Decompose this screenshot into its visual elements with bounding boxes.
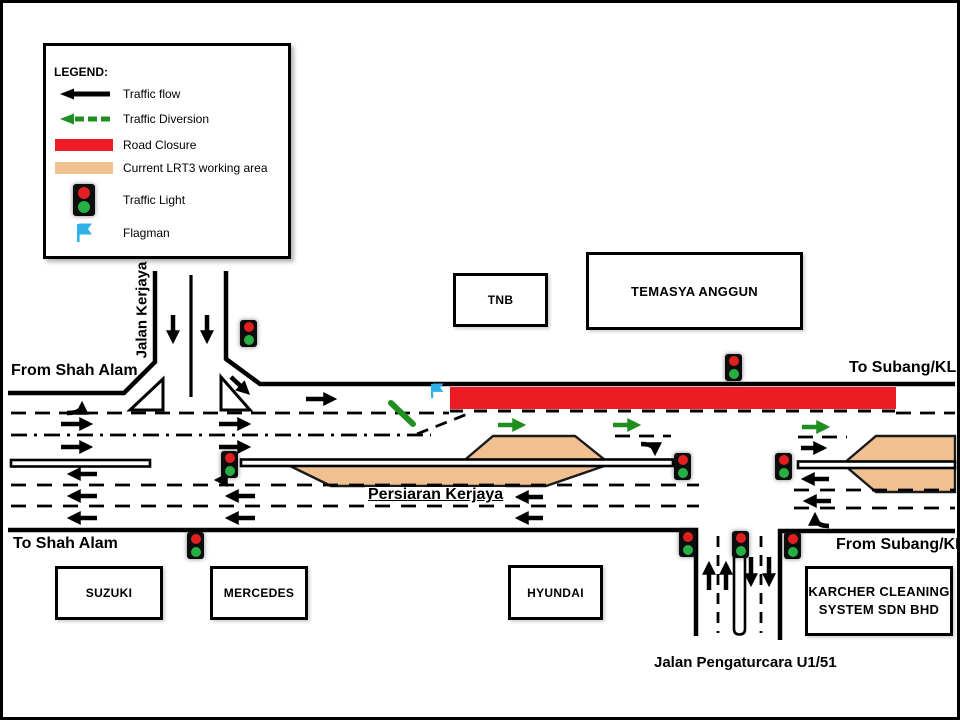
building-label: TEMASYA ANGGUN: [631, 284, 758, 299]
legend-label: Traffic Diversion: [123, 112, 209, 126]
traffic-light: [221, 451, 238, 478]
red-light: [788, 534, 798, 544]
building-temasya-anggun: TEMASYA ANGGUN: [586, 252, 803, 330]
flow-arrow-turn: [815, 516, 829, 526]
median-west: [11, 460, 150, 467]
legend-label: Road Closure: [123, 138, 196, 152]
green-light: [191, 547, 201, 557]
diversion-arrows: [498, 425, 826, 427]
traffic-light: [674, 453, 691, 480]
building-tnb: TNB: [453, 273, 548, 327]
legend-box: LEGEND: Traffic flow Traffic Diversion R…: [43, 43, 291, 259]
red-light: [736, 533, 746, 543]
red-light: [678, 455, 688, 465]
road-label-jalan-pengaturcara: Jalan Pengaturcara U1/51: [654, 655, 837, 670]
lane-merge-dash: [417, 413, 470, 434]
red-light: [191, 534, 201, 544]
green-light: [244, 335, 254, 345]
building-karcher: KARCHER CLEANING SYSTEM SDN BHD: [805, 566, 953, 636]
median-center: [241, 460, 673, 467]
building-label: SUZUKI: [86, 586, 132, 600]
road-label-to-shah-alam: To Shah Alam: [13, 536, 118, 552]
building-mercedes: MERCEDES: [210, 566, 308, 620]
working-area-bar-icon: [53, 156, 115, 180]
green-light: [779, 468, 789, 478]
red-light: [683, 532, 693, 542]
legend-label: Traffic flow: [123, 87, 180, 101]
building-suzuki: SUZUKI: [55, 566, 163, 620]
red-light: [244, 322, 254, 332]
legend-label: Traffic Light: [123, 193, 185, 207]
legend-row-working-area: Current LRT3 working area: [46, 156, 288, 180]
red-light: [779, 455, 789, 465]
legend-row-traffic-flow: Traffic flow: [46, 82, 288, 106]
building-label: HYUNDAI: [527, 586, 584, 600]
road-label-jalan-kerjaya: Jalan Kerjaya: [135, 262, 150, 359]
green-light: [678, 468, 688, 478]
traffic-flow-arrow-icon: [53, 82, 115, 106]
legend-row-traffic-diversion: Traffic Diversion: [46, 107, 288, 131]
green-light: [729, 369, 739, 379]
building-label: KARCHER CLEANING: [808, 583, 949, 601]
traffic-light: [784, 532, 801, 559]
traffic-flow-arrows: [61, 315, 831, 590]
traffic-light: [732, 531, 749, 558]
traffic-light: [187, 532, 204, 559]
building-hyundai: HYUNDAI: [508, 565, 603, 620]
flagman-icon: [431, 384, 444, 399]
building-label: MERCEDES: [224, 586, 294, 600]
legend-row-flagman: Flagman: [46, 218, 288, 248]
traffic-light: [240, 320, 257, 347]
traffic-diversion-diagram: From Shah Alam To Subang/KL To Shah Alam…: [0, 0, 960, 720]
flow-arrow-turn: [641, 444, 655, 452]
green-light: [683, 545, 693, 555]
road-label-to-subang-kl: To Subang/KL: [849, 360, 956, 376]
traffic-light: [679, 530, 696, 557]
red-light: [729, 356, 739, 366]
legend-title: LEGEND:: [54, 65, 108, 79]
traffic-light: [775, 453, 792, 480]
traffic-light: [725, 354, 742, 381]
building-label: SYSTEM SDN BHD: [819, 601, 940, 619]
green-light: [225, 466, 235, 476]
building-label: TNB: [488, 293, 514, 307]
flagman-icon: [53, 218, 115, 248]
green-light: [788, 547, 798, 557]
green-light: [736, 546, 746, 556]
red-light: [225, 453, 235, 463]
traffic-diversion-arrow-icon: [53, 107, 115, 131]
legend-label: Current LRT3 working area: [123, 161, 268, 175]
road-label-from-shah-alam: From Shah Alam: [11, 363, 138, 379]
legend-row-traffic-light: Traffic Light: [46, 182, 288, 218]
road-closure-bar: [450, 387, 896, 412]
legend-row-road-closure: Road Closure: [46, 133, 288, 157]
median-east: [798, 462, 955, 469]
road-label-persiaran-kerjaya: Persiaran Kerjaya: [365, 487, 506, 503]
flow-arrow-turn: [67, 405, 82, 413]
road-label-from-subang-kl: From Subang/KL: [836, 537, 960, 553]
road-closure-bar-icon: [53, 133, 115, 157]
traffic-light-icon: [53, 182, 115, 218]
legend-label: Flagman: [123, 226, 170, 240]
